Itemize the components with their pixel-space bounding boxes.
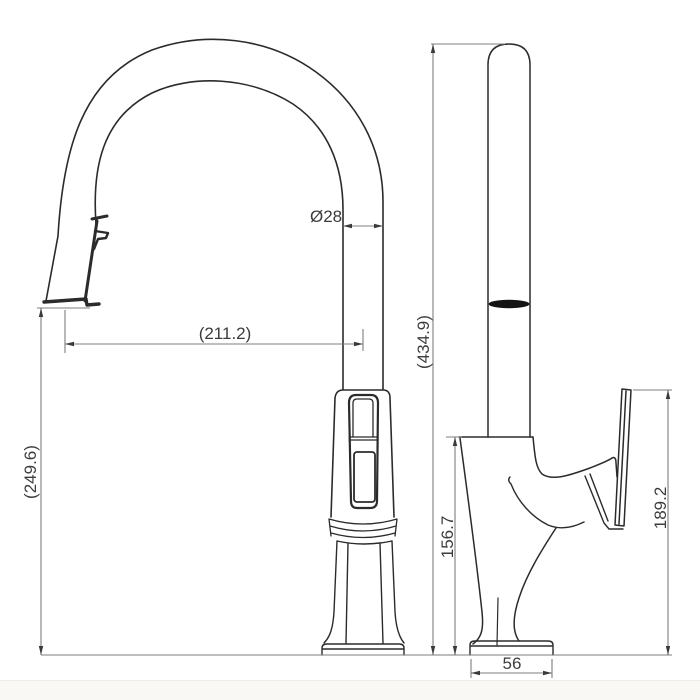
- footer-strip: [0, 680, 700, 700]
- front-body-collar: [329, 519, 397, 538]
- arrowhead-bottom: [666, 646, 670, 655]
- front-base-neck: [324, 541, 404, 643]
- dim-spout-diameter: Ø28: [310, 207, 383, 228]
- dim-label-outlet-height: (249.6): [21, 445, 40, 499]
- side-base-plate: [470, 641, 553, 655]
- sprayer-head-cap: [92, 216, 107, 219]
- side-neck-inner-line: [497, 598, 498, 645]
- arrowhead-left: [471, 671, 480, 675]
- side-body-arm-underside: [509, 477, 584, 528]
- drawing-canvas: Ø28 (211.2) (249.6) (434.9): [0, 0, 700, 700]
- dim-horizontal-reach: (211.2): [65, 310, 363, 353]
- front-handle-inner-upper: [353, 399, 373, 437]
- side-body-arm-top: [533, 437, 617, 477]
- dim-body-height: 156.7: [438, 437, 462, 655]
- arrowhead-right: [543, 671, 552, 675]
- sprayer-outlet: [44, 299, 99, 305]
- arrowhead-left: [343, 224, 352, 228]
- front-base-plate: [322, 644, 404, 655]
- dim-handle-height: 189.2: [633, 390, 672, 655]
- side-handle-lever: [615, 389, 631, 526]
- arrowhead-right: [374, 224, 383, 228]
- sprayer-head-edge: [85, 221, 97, 301]
- front-handle-divider: [349, 437, 378, 440]
- arrowhead-right: [354, 342, 363, 346]
- front-handle-inner-lower: [354, 452, 375, 502]
- arrowhead-top: [39, 308, 43, 317]
- dim-label-handle-height: 189.2: [651, 487, 670, 530]
- side-view: [459, 44, 631, 655]
- dim-label-overall-height: (434.9): [414, 315, 433, 369]
- dim-label-horizontal-reach: (211.2): [199, 324, 252, 343]
- dim-label-body-height: 156.7: [438, 516, 457, 559]
- arrowhead-left: [65, 342, 74, 346]
- technical-drawing: Ø28 (211.2) (249.6) (434.9): [0, 0, 700, 700]
- dim-line: [431, 44, 505, 655]
- arrowhead-top: [431, 44, 435, 53]
- dim-label-spout-diameter: Ø28: [310, 207, 342, 226]
- dim-line: [37, 308, 90, 655]
- dimensions: Ø28 (211.2) (249.6) (434.9): [21, 44, 672, 678]
- arrowhead-top: [453, 437, 457, 446]
- side-body-front-edge: [460, 438, 483, 644]
- arrowhead-top: [666, 390, 670, 399]
- arrowhead-bottom: [453, 646, 457, 655]
- front-view: [44, 39, 404, 655]
- dim-base-width: 56: [471, 654, 552, 678]
- dim-label-base-width: 56: [503, 654, 522, 673]
- side-spout-tube: [488, 44, 530, 437]
- arrowhead-bottom: [431, 646, 435, 655]
- arrowhead-bottom: [39, 646, 43, 655]
- side-body-back-curve: [514, 528, 556, 641]
- front-body: [331, 390, 394, 517]
- dim-overall-height: (434.9): [414, 44, 505, 655]
- spout-seam-band: [489, 300, 530, 308]
- dim-outlet-height: (249.6): [21, 308, 90, 655]
